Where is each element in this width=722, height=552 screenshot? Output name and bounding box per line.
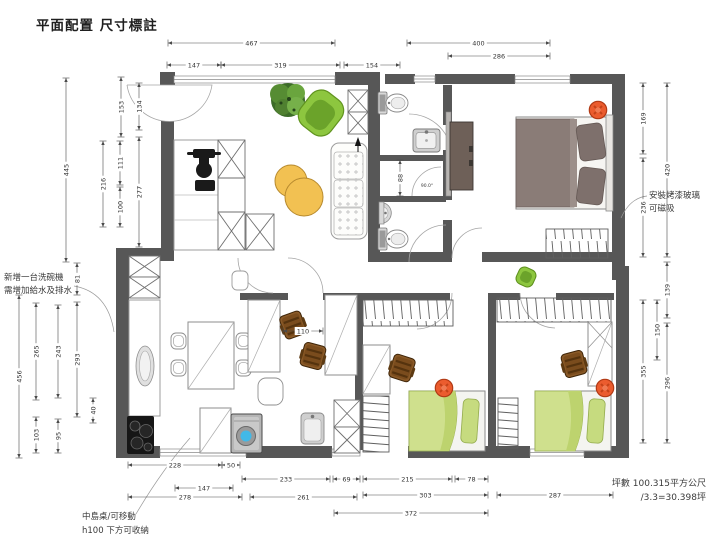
svg-text:95: 95: [54, 432, 62, 440]
dim-label-372: 372: [403, 509, 420, 517]
svg-text:233: 233: [280, 475, 292, 483]
svg-text:456: 456: [15, 370, 23, 382]
dim-label-286: 286: [491, 52, 508, 60]
note-island: 中島桌/可移動h100 下方可收納: [82, 511, 149, 536]
note-dishwasher-line: 新增一台洗碗機: [4, 272, 64, 283]
laundry-sink: [301, 413, 324, 444]
dim-label-236: 236: [639, 199, 647, 216]
dim-label-147: 147: [186, 61, 203, 69]
dim-label-100: 100: [116, 199, 124, 216]
svg-text:400: 400: [472, 39, 484, 47]
bedroom2-closet: [363, 300, 453, 326]
master-bed: [516, 115, 613, 211]
dim-label-233: 233: [278, 475, 295, 483]
shoe-cabinet: [348, 90, 368, 134]
dim-label-50: 50: [225, 461, 237, 469]
office-chair-3: [386, 353, 418, 384]
dim-label-69: 69: [340, 475, 352, 483]
dim-label-287: 287: [547, 491, 564, 499]
side-table: [258, 378, 283, 405]
desk-4: [588, 322, 612, 386]
svg-text:236: 236: [639, 201, 647, 213]
dim-label-153: 153: [117, 99, 125, 116]
page-title: 平面配置 尺寸標註: [36, 17, 158, 34]
svg-text:445: 445: [62, 164, 70, 176]
sofa: [331, 143, 367, 239]
svg-text:303: 303: [419, 491, 431, 499]
svg-text:81: 81: [73, 275, 81, 283]
corner-cabinet: [246, 214, 274, 250]
dim-label-150: 150: [653, 322, 661, 339]
svg-text:296: 296: [663, 377, 671, 389]
dim-label-110: 110: [295, 327, 312, 335]
stool-master: [589, 101, 606, 118]
svg-text:293: 293: [73, 353, 81, 365]
svg-text:216: 216: [99, 178, 107, 190]
svg-text:147: 147: [198, 484, 210, 492]
note-door-angle-line: 90.0°: [421, 183, 433, 189]
floor-plan-svg: 平面配置 尺寸標註 467400286147319154110228502336…: [0, 0, 722, 552]
tall-cabinet: [218, 140, 245, 250]
dim-label-215: 215: [399, 475, 416, 483]
dim-label-277: 277: [135, 184, 143, 201]
note-glass-line: 可磁吸: [649, 203, 675, 214]
dim-label-278: 278: [177, 493, 194, 501]
dim-label-228: 228: [167, 461, 184, 469]
tv-cabinet: [446, 112, 473, 196]
note-island-line: 中島桌/可移動: [82, 511, 136, 522]
bedroom3-closet: [497, 298, 611, 322]
wall-top-mid: [335, 72, 380, 85]
note-glass-line: 安裝烤漆玻璃: [649, 190, 701, 201]
dining-chair: [171, 333, 186, 349]
dim-label-400: 400: [470, 39, 487, 47]
wall-bath-div-2: [368, 196, 446, 202]
dim-label-95: 95: [54, 430, 62, 442]
dim-label-139: 139: [663, 282, 671, 299]
coffee-station: [174, 140, 274, 290]
bed-green-2: [535, 391, 611, 451]
dim-label-303: 303: [417, 491, 434, 499]
svg-text:111: 111: [116, 157, 124, 169]
master-bedroom: [446, 101, 613, 258]
bedroom-3: [497, 298, 614, 451]
island-table: [200, 408, 231, 453]
wall-east-upper: [612, 74, 625, 272]
svg-text:40: 40: [89, 406, 97, 414]
laundry-cabinet: [334, 400, 360, 453]
wall-east-lower: [616, 278, 629, 458]
svg-text:467: 467: [245, 39, 257, 47]
dim-label-296: 296: [663, 375, 671, 392]
svg-text:150: 150: [653, 324, 661, 336]
floor-plan-page: 平面配置 尺寸標註 467400286147319154110228502336…: [0, 0, 722, 552]
svg-text:100: 100: [116, 201, 124, 213]
bench-seat: [232, 271, 248, 290]
dim-label-243: 243: [54, 343, 62, 360]
svg-text:103: 103: [32, 429, 40, 441]
round-sink-lower: [379, 202, 391, 224]
note-area-line: /3.3=30.398坪: [641, 492, 706, 503]
toilet-bottom: [378, 228, 408, 250]
note-area-line: 坪數 100.315平方公尺: [612, 477, 706, 489]
dim-label-265: 265: [32, 343, 40, 360]
wall-east-stub: [612, 266, 629, 280]
bed-green-1: [409, 391, 485, 451]
dim-label-111: 111: [116, 155, 124, 172]
wall-bedroom-divider: [488, 293, 496, 453]
note-dishwasher-line: 需增加給水及排水: [4, 285, 73, 296]
svg-text:154: 154: [366, 61, 378, 69]
dim-label-261: 261: [295, 493, 312, 501]
desk-3: [363, 345, 390, 394]
dim-label-169: 169: [639, 110, 647, 127]
cooktop: [127, 416, 154, 454]
svg-text:139: 139: [663, 284, 671, 296]
svg-text:265: 265: [32, 345, 40, 357]
dim-label-355: 355: [639, 363, 647, 380]
bedroom2-wardrobe-strip: [363, 396, 389, 452]
svg-text:147: 147: [188, 61, 200, 69]
office-chair-2: [297, 341, 328, 371]
wall-topleft-block: [160, 72, 175, 85]
dim-label-40: 40: [89, 404, 97, 416]
bathrooms: [378, 92, 440, 250]
dim-label-445: 445: [62, 162, 70, 179]
wall-left-upper: [161, 121, 174, 252]
stool-bedroom3: [596, 379, 613, 396]
desk-1: [248, 300, 280, 372]
wall-corridor-south-1: [240, 293, 288, 300]
svg-text:372: 372: [405, 509, 417, 517]
note-door-angle: 90.0°: [421, 183, 433, 189]
dim-label-88: 88: [396, 172, 404, 184]
svg-text:215: 215: [401, 475, 413, 483]
corridor-door-arc-b: [288, 258, 323, 293]
dim-label-154: 154: [364, 61, 381, 69]
bedroom3-wardrobe-strip: [498, 398, 518, 448]
svg-text:278: 278: [179, 493, 191, 501]
svg-text:88: 88: [396, 174, 404, 182]
dim-label-216: 216: [99, 176, 107, 193]
svg-text:243: 243: [54, 345, 62, 357]
wall-top-right: [570, 74, 615, 84]
svg-text:287: 287: [549, 491, 561, 499]
dim-label-78: 78: [465, 475, 477, 483]
leader-dishwasher: [74, 286, 114, 332]
dim-label-456: 456: [15, 368, 23, 385]
dim-label-319: 319: [272, 61, 289, 69]
svg-text:277: 277: [135, 186, 143, 198]
dining-table: [188, 322, 234, 389]
dim-label-103: 103: [32, 427, 40, 444]
svg-text:153: 153: [117, 101, 125, 113]
note-island-line: h100 下方可收納: [82, 525, 149, 536]
master-closet: [546, 229, 608, 258]
svg-text:286: 286: [493, 52, 505, 60]
svg-text:355: 355: [639, 365, 647, 377]
dim-label-467: 467: [243, 39, 260, 47]
stool-bedroom2: [435, 379, 452, 396]
window-bath-top: [414, 76, 435, 82]
svg-text:169: 169: [639, 112, 647, 124]
note-area: 坪數 100.315平方公尺/3.3=30.398坪: [612, 477, 706, 503]
dining-chair: [171, 360, 186, 376]
dim-label-134: 134: [135, 98, 143, 115]
note-glass: 安裝烤漆玻璃可磁吸: [649, 190, 701, 214]
dim-label-420: 420: [663, 162, 671, 179]
master-door-arc: [452, 228, 482, 258]
svg-text:50: 50: [227, 461, 235, 469]
window-master-top: [515, 76, 570, 83]
study-nook: [248, 295, 357, 405]
svg-text:78: 78: [467, 475, 475, 483]
svg-text:134: 134: [135, 100, 143, 112]
dim-label-81: 81: [73, 273, 81, 285]
svg-text:110: 110: [297, 327, 309, 335]
corridor: [514, 265, 538, 289]
note-dishwasher: 新增一台洗碗機需增加給水及排水: [4, 272, 73, 296]
wall-top-bath: [385, 74, 415, 84]
toilet-top: [378, 92, 408, 114]
svg-text:319: 319: [274, 61, 286, 69]
bedroom-2: [363, 300, 485, 452]
washing-machine: [231, 414, 262, 453]
kitchen-upper-cabinets: [129, 256, 160, 298]
living-room: [270, 83, 368, 239]
svg-text:69: 69: [342, 475, 350, 483]
office-chair-4: [558, 349, 589, 379]
pouf-yellow-2: [285, 178, 323, 216]
cabinet-2: [325, 295, 357, 375]
svg-text:228: 228: [169, 461, 181, 469]
hall-door-arc: [412, 167, 441, 196]
dim-label-147: 147: [196, 484, 213, 492]
wall-bath-div-1: [368, 155, 446, 161]
dim-label-293: 293: [73, 351, 81, 368]
wall-top-master-left: [435, 74, 515, 84]
vanity-sink-top: [413, 129, 440, 152]
svg-text:420: 420: [663, 164, 671, 176]
window-living-top: [174, 76, 335, 83]
svg-text:261: 261: [297, 493, 309, 501]
office-chair-1: [277, 309, 310, 340]
desk-chair-green: [514, 265, 538, 289]
